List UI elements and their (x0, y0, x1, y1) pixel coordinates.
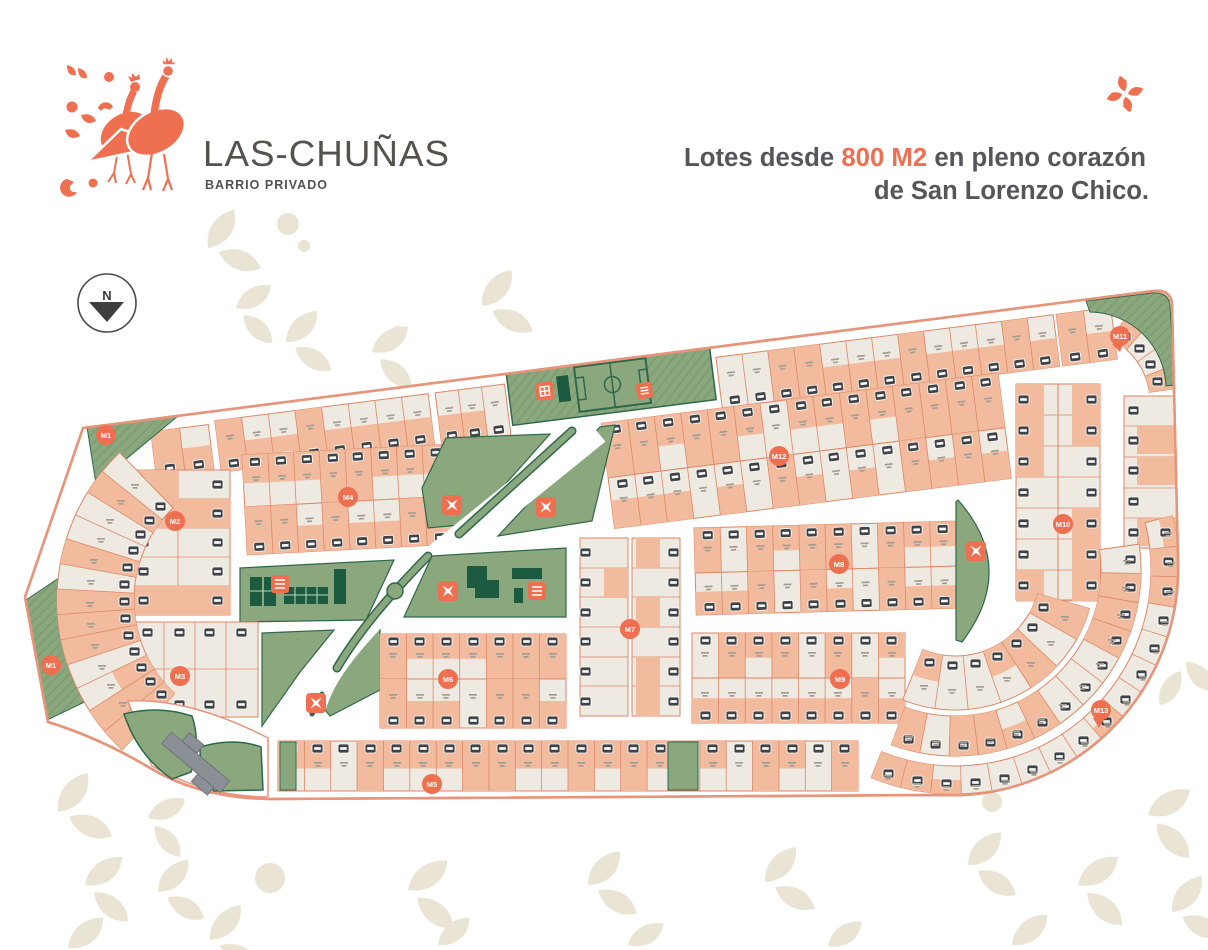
svg-text:LAS-CHUÑAS: LAS-CHUÑAS (203, 133, 450, 174)
svg-text:M9: M9 (835, 675, 845, 684)
svg-text:M3: M3 (175, 672, 185, 681)
svg-text:Lotes desde 800 M2 en pleno co: Lotes desde 800 M2 en pleno corazón (684, 144, 1146, 172)
svg-text:M5: M5 (427, 780, 437, 789)
svg-text:de San Lorenzo Chico.: de San Lorenzo Chico. (874, 177, 1149, 205)
svg-text:M7: M7 (625, 625, 635, 634)
svg-text:M1: M1 (46, 661, 56, 670)
svg-text:M2: M2 (170, 517, 180, 526)
svg-text:M4: M4 (343, 493, 354, 502)
svg-text:M6: M6 (443, 675, 453, 684)
svg-text:M1: M1 (101, 431, 111, 440)
svg-text:M13: M13 (1094, 706, 1109, 715)
svg-text:M8: M8 (834, 560, 844, 569)
svg-text:M10: M10 (1056, 520, 1071, 529)
svg-text:N: N (102, 288, 111, 303)
svg-text:M11: M11 (1113, 332, 1127, 341)
svg-text:M12: M12 (772, 452, 787, 461)
svg-text:BARRIO PRIVADO: BARRIO PRIVADO (205, 178, 328, 192)
